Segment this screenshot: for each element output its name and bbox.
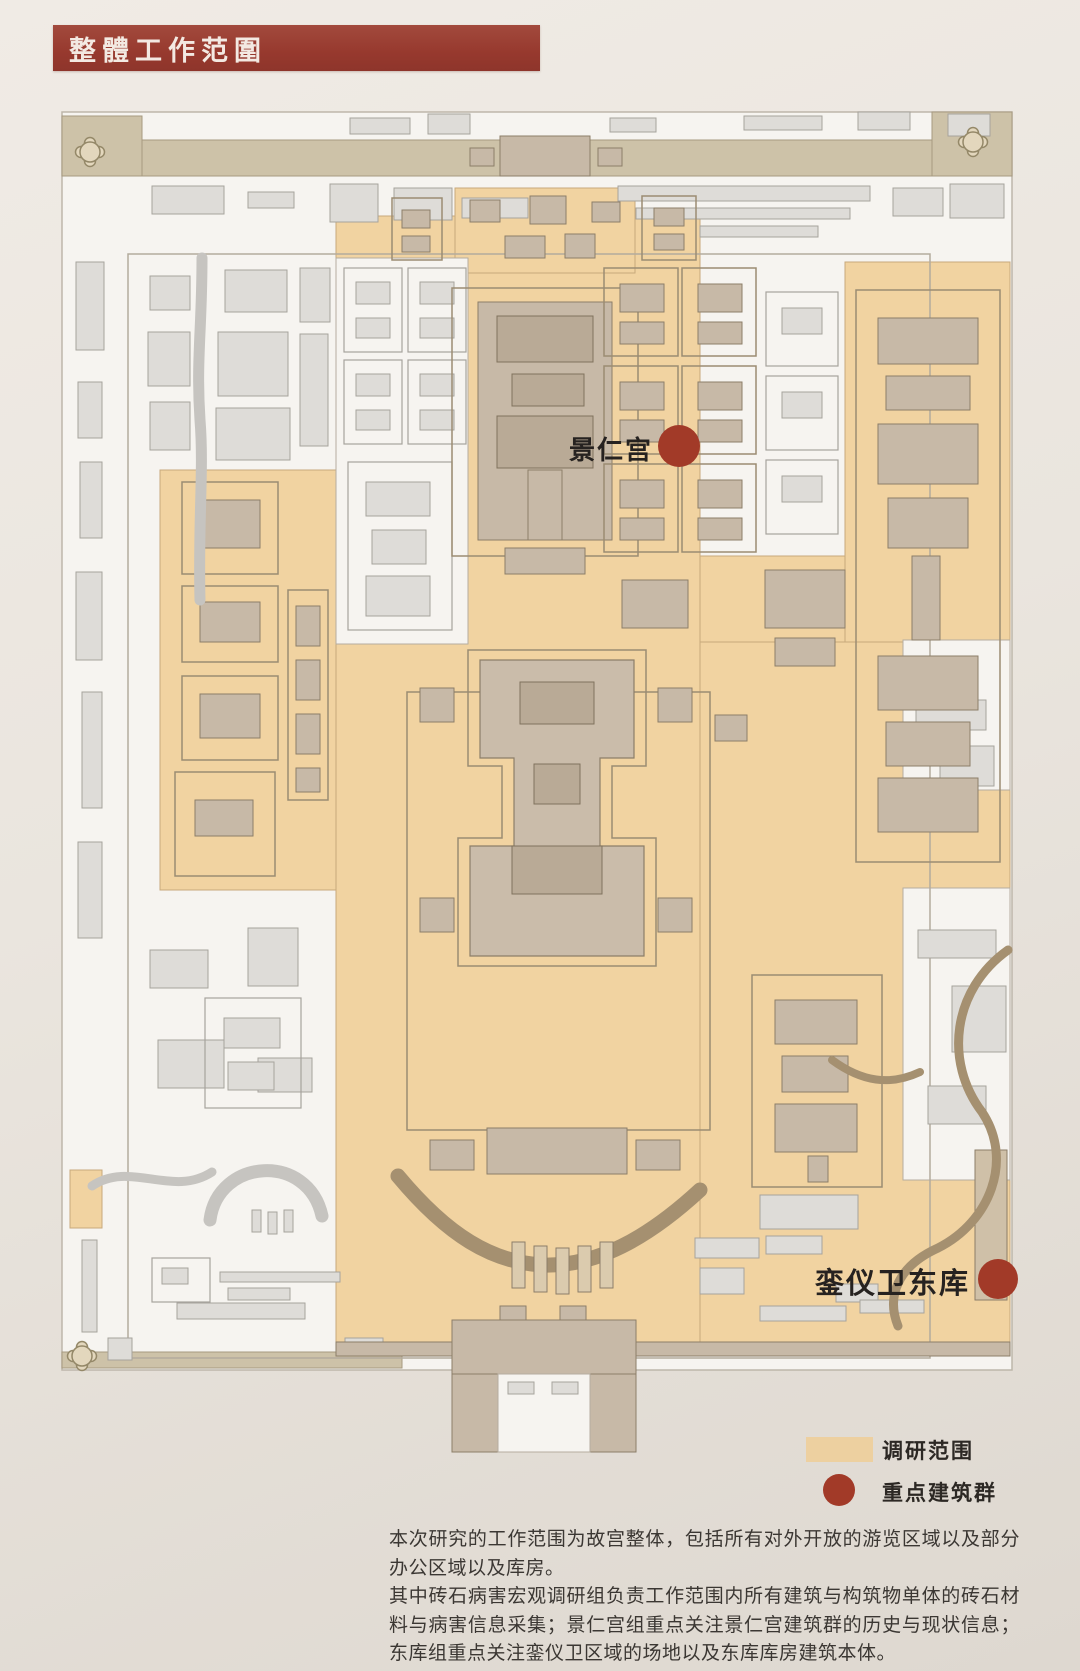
description-text: 本次研究的工作范围为故宫整体，包括所有对外开放的游览区域以及部分办公区域以及库房… (389, 1526, 1020, 1669)
label-luanyiwei-east-warehouse: 銮仪卫东库 (815, 1260, 970, 1302)
forbidden-city-plan (0, 0, 1080, 1671)
marker-luanyiwei-east-warehouse (978, 1259, 1018, 1299)
key-building-swatch (822, 1473, 856, 1507)
marker-jingren-palace (658, 425, 700, 467)
document-page: { "title": { "label": "整體工作范圍" }, "map":… (0, 0, 1080, 1671)
description-paragraph-1: 本次研究的工作范围为故宫整体，包括所有对外开放的游览区域以及部分办公区域以及库房… (389, 1526, 1020, 1583)
survey-area-swatch (806, 1437, 873, 1462)
description-paragraph-2: 其中砖石病害宏观调研组负责工作范围内所有建筑与构筑物单体的砖石材料与病害信息采集… (389, 1583, 1020, 1669)
label-jingren-palace: 景仁宫 (545, 430, 653, 467)
legend-label-survey-area: 调研范围 (882, 1435, 974, 1465)
legend-label-key-building: 重点建筑群 (882, 1477, 997, 1507)
